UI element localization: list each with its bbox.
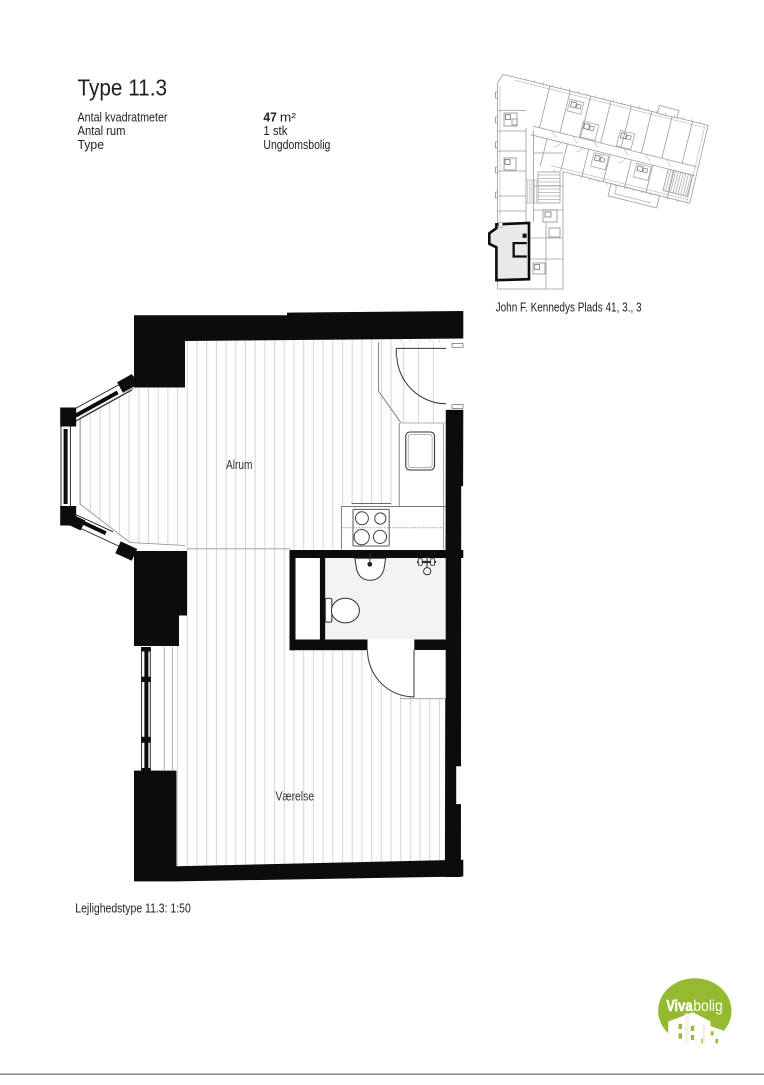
svg-text:bolig: bolig — [693, 998, 723, 1015]
svg-text:Lejlighedstype 11.3: 1:50: Lejlighedstype 11.3: 1:50 — [75, 901, 191, 916]
svg-text:Alrum: Alrum — [226, 457, 253, 472]
svg-text:Type 11.3: Type 11.3 — [78, 75, 168, 101]
svg-text:Ungdomsbolig: Ungdomsbolig — [263, 137, 330, 152]
svg-text:Værelse: Værelse — [276, 788, 315, 803]
svg-text:John F. Kennedys Plads 41, 3.,: John F. Kennedys Plads 41, 3., 3 — [496, 300, 642, 315]
svg-text:Type: Type — [78, 137, 105, 152]
svg-text:Viva: Viva — [666, 998, 692, 1015]
